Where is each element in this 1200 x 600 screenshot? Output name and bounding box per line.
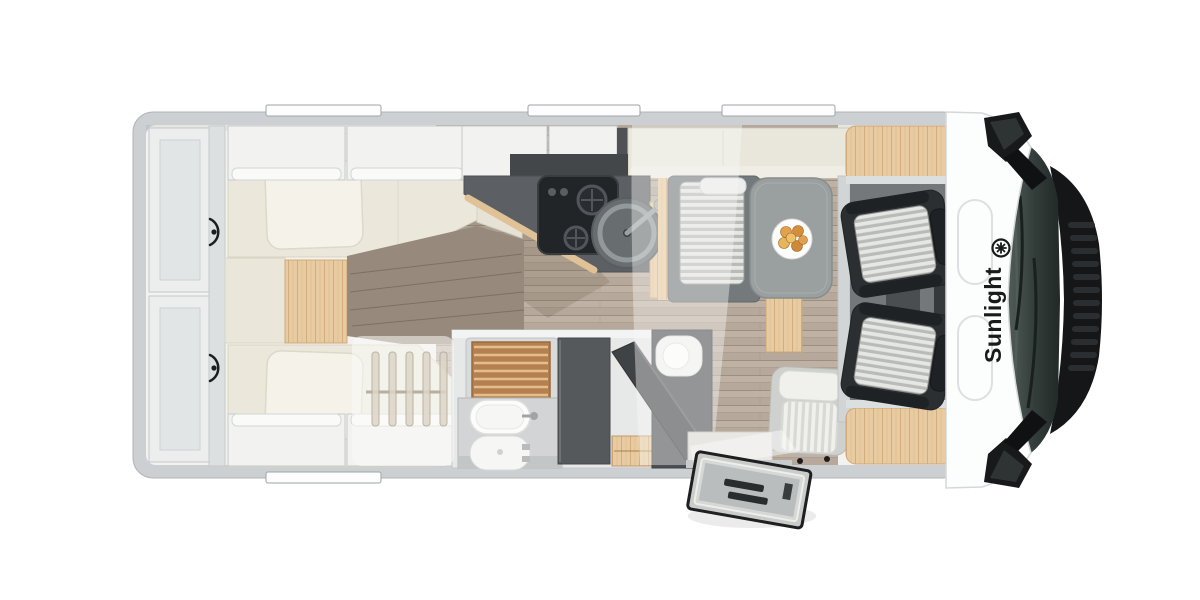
floorplan-stage: Sunlight	[0, 0, 1200, 600]
bathroom-cabinet	[558, 338, 610, 464]
stove-knob	[548, 188, 556, 196]
door-hinge	[824, 456, 830, 462]
travel-seat-back	[779, 370, 842, 401]
seat-cushion	[853, 205, 937, 284]
cabinet-lip	[232, 168, 341, 180]
basin-faucet	[530, 412, 538, 420]
stove-knob	[560, 188, 568, 196]
window-bottom-1	[266, 472, 381, 483]
storage-shelf-bottom	[160, 308, 200, 450]
shower-grate	[472, 342, 550, 400]
clothes-hanger	[389, 352, 396, 426]
bathroom-wall-top	[452, 330, 656, 338]
headboard-panel	[225, 258, 285, 343]
toilet-lid	[470, 436, 530, 470]
wardrobe-overlay	[352, 336, 454, 466]
cab-seat-top	[839, 188, 959, 299]
window-top-2	[528, 105, 640, 116]
cab-front-exterior	[1008, 147, 1102, 453]
cab-wood-floor-bottom	[846, 408, 958, 464]
cabinet-lip	[351, 168, 463, 180]
clothes-hanger	[372, 352, 379, 426]
brand-wordmark: Sunlight	[980, 267, 1006, 363]
seat-cushion	[853, 316, 937, 395]
window-top-1	[266, 105, 381, 116]
clothes-hanger	[440, 352, 447, 426]
rear-storage-shelves	[149, 126, 225, 466]
window-top-3	[722, 105, 835, 116]
door-hinge	[797, 458, 803, 464]
clothes-hanger	[406, 352, 413, 426]
clothes-hanger	[423, 352, 430, 426]
food-plate	[772, 219, 812, 259]
cabinet-lip	[232, 414, 341, 426]
cab-interior	[838, 126, 960, 464]
cab-wood-floor-top	[846, 126, 958, 182]
storage-divider-wall	[209, 126, 225, 466]
cab-frame-top	[846, 176, 958, 184]
cab-seat-bottom	[839, 301, 959, 412]
table-leg	[766, 290, 802, 352]
bedroom-step	[285, 260, 347, 343]
floorplan-canvas: Sunlight	[0, 0, 1200, 600]
storage-shelf-top	[160, 140, 200, 280]
